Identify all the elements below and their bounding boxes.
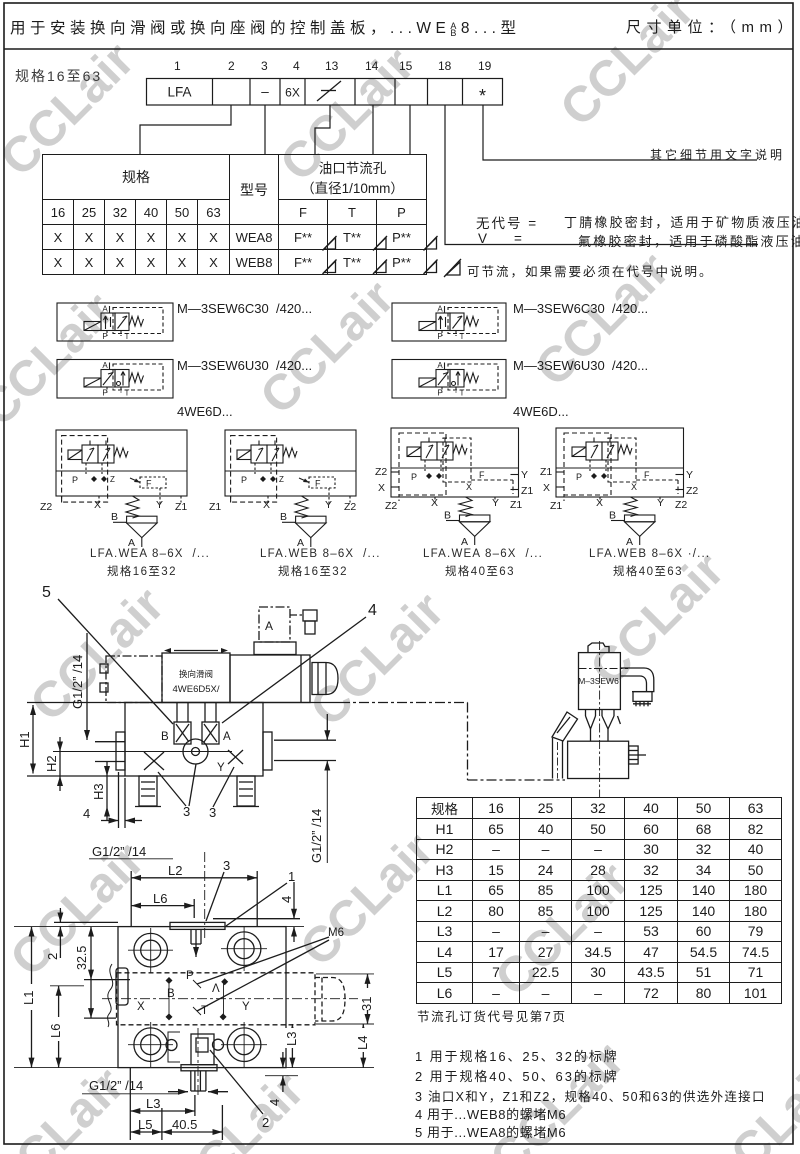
svg-text:T: T bbox=[125, 389, 130, 398]
svg-text:Z2: Z2 bbox=[686, 485, 698, 497]
svg-text:G1/2” /14: G1/2” /14 bbox=[70, 655, 85, 709]
svg-text:Z: Z bbox=[110, 475, 115, 484]
svg-text:L1: L1 bbox=[21, 991, 36, 1005]
svg-text:P: P bbox=[437, 389, 442, 398]
svg-text:31: 31 bbox=[359, 997, 374, 1011]
svg-text:–: – bbox=[261, 84, 269, 99]
svg-text:M6: M6 bbox=[328, 927, 344, 939]
svg-text:P: P bbox=[102, 332, 107, 341]
svg-text:L3: L3 bbox=[146, 1096, 160, 1111]
svg-text:B: B bbox=[167, 988, 175, 1000]
svg-text:X: X bbox=[596, 497, 603, 509]
svg-text:Z: Z bbox=[279, 475, 284, 484]
svg-text:X: X bbox=[378, 482, 385, 494]
svg-text:B: B bbox=[161, 731, 169, 743]
svg-text:Y: Y bbox=[217, 762, 225, 774]
svg-text:L6: L6 bbox=[153, 891, 167, 906]
svg-text:A: A bbox=[223, 731, 231, 743]
svg-text:X: X bbox=[466, 482, 472, 492]
svg-text:Y: Y bbox=[521, 469, 528, 481]
svg-text:A: A bbox=[626, 536, 633, 548]
svg-text:L3: L3 bbox=[284, 1032, 299, 1046]
svg-text:6X: 6X bbox=[285, 86, 300, 100]
svg-text:Y: Y bbox=[242, 1001, 250, 1013]
svg-text:4WE6D5X/: 4WE6D5X/ bbox=[173, 684, 220, 695]
svg-text:G1/2” /14: G1/2” /14 bbox=[89, 1078, 143, 1093]
svg-text:Z2: Z2 bbox=[375, 466, 387, 478]
svg-text:2: 2 bbox=[45, 953, 60, 960]
svg-text:LFA: LFA bbox=[167, 85, 191, 100]
svg-text:A: A bbox=[102, 305, 108, 314]
svg-text:B: B bbox=[111, 511, 118, 523]
svg-text:G1/2” /14: G1/2” /14 bbox=[92, 844, 146, 859]
svg-text:A: A bbox=[437, 305, 443, 314]
svg-text:Z1: Z1 bbox=[175, 501, 187, 513]
svg-text:Z1: Z1 bbox=[510, 499, 522, 511]
svg-text:B: B bbox=[444, 510, 451, 522]
svg-text:P: P bbox=[411, 472, 417, 482]
svg-text:Z2: Z2 bbox=[344, 501, 356, 513]
svg-text:A: A bbox=[461, 536, 468, 548]
svg-text:*: * bbox=[479, 86, 486, 106]
svg-text:T: T bbox=[125, 332, 130, 341]
svg-text:Y: Y bbox=[492, 497, 499, 509]
svg-text:Y: Y bbox=[686, 469, 693, 481]
svg-text:40.5: 40.5 bbox=[172, 1117, 197, 1132]
svg-text:F: F bbox=[315, 479, 321, 489]
svg-text:Z1: Z1 bbox=[521, 485, 533, 497]
svg-text:4: 4 bbox=[267, 1099, 282, 1106]
svg-text:H3: H3 bbox=[91, 783, 106, 800]
svg-text:X: X bbox=[431, 497, 438, 509]
svg-text:A: A bbox=[265, 619, 273, 633]
svg-text:4: 4 bbox=[83, 806, 90, 821]
svg-text:A: A bbox=[102, 361, 108, 370]
svg-text:T: T bbox=[460, 332, 465, 341]
svg-text:L6: L6 bbox=[48, 1024, 63, 1038]
svg-text:F: F bbox=[644, 470, 650, 480]
svg-text:L4: L4 bbox=[355, 1036, 370, 1050]
svg-text:A: A bbox=[297, 537, 304, 549]
svg-text:L2: L2 bbox=[168, 863, 182, 878]
svg-text:3: 3 bbox=[223, 858, 230, 873]
svg-text:Y: Y bbox=[156, 499, 163, 511]
svg-text:B: B bbox=[609, 510, 616, 522]
svg-text:X: X bbox=[137, 1001, 145, 1013]
svg-text:4: 4 bbox=[368, 602, 377, 619]
svg-text:Z1: Z1 bbox=[550, 500, 562, 512]
svg-text:X: X bbox=[543, 482, 550, 494]
svg-text:B: B bbox=[280, 511, 287, 523]
svg-text:T: T bbox=[460, 389, 465, 398]
svg-text:Z1: Z1 bbox=[540, 466, 552, 478]
svg-text:X: X bbox=[263, 499, 270, 511]
svg-text:A: A bbox=[437, 361, 443, 370]
svg-text:P: P bbox=[241, 475, 247, 485]
svg-text:32.5: 32.5 bbox=[75, 946, 89, 970]
svg-text:Y: Y bbox=[657, 497, 664, 509]
svg-text:Λ: Λ bbox=[212, 983, 220, 995]
svg-text:H2: H2 bbox=[44, 755, 59, 772]
svg-text:G1/2” /14: G1/2” /14 bbox=[309, 809, 324, 863]
svg-text:3: 3 bbox=[209, 805, 216, 820]
svg-text:H1: H1 bbox=[17, 731, 32, 748]
svg-text:P: P bbox=[437, 332, 442, 341]
svg-text:A: A bbox=[128, 537, 135, 549]
svg-text:P: P bbox=[576, 472, 582, 482]
svg-text:X: X bbox=[94, 499, 101, 511]
svg-text:X: X bbox=[631, 482, 637, 492]
svg-text:F: F bbox=[146, 479, 152, 489]
svg-text:1: 1 bbox=[288, 869, 295, 884]
svg-text:Z1: Z1 bbox=[209, 501, 221, 513]
svg-text:3: 3 bbox=[183, 804, 190, 819]
svg-text:Z2: Z2 bbox=[40, 501, 52, 513]
svg-text:4: 4 bbox=[279, 896, 294, 903]
svg-text:P: P bbox=[102, 389, 107, 398]
svg-text:M–3SEW6: M–3SEW6 bbox=[578, 676, 619, 686]
svg-text:F: F bbox=[479, 470, 485, 480]
svg-text:Z2: Z2 bbox=[675, 499, 687, 511]
svg-text:Z2: Z2 bbox=[385, 500, 397, 512]
svg-text:Y: Y bbox=[325, 499, 332, 511]
svg-text:L5: L5 bbox=[138, 1117, 152, 1132]
svg-text:5: 5 bbox=[42, 584, 51, 601]
svg-text:P: P bbox=[72, 475, 78, 485]
svg-text:换向滑阀: 换向滑阀 bbox=[179, 669, 213, 679]
svg-text:2: 2 bbox=[262, 1115, 269, 1130]
